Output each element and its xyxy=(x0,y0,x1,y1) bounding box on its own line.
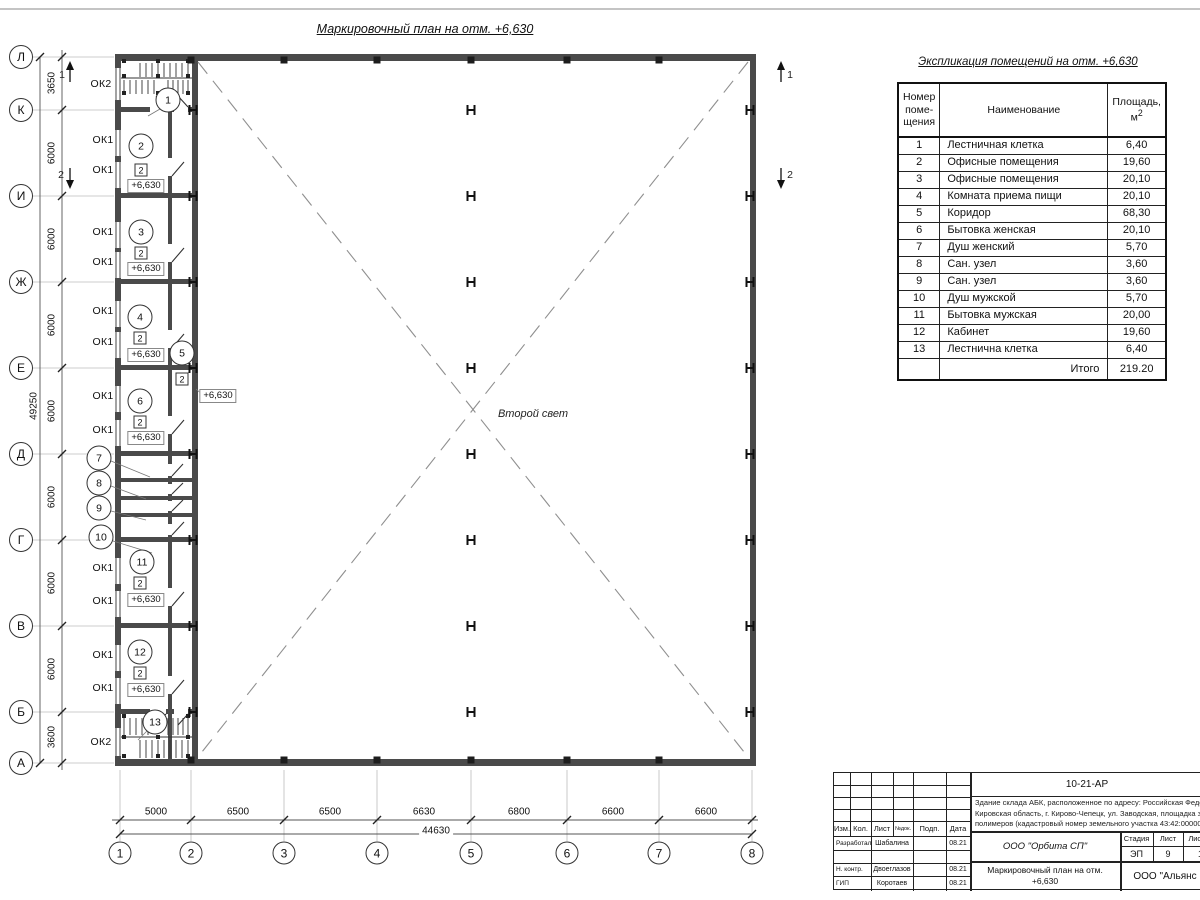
tb-col-data: Дата xyxy=(946,821,970,836)
title-block: Изм. Кол. Лист №док. Подп. Дата Разработ… xyxy=(833,772,1200,890)
room-area-cell: 5,70 xyxy=(1108,239,1166,256)
room-area-cell: 19,60 xyxy=(1108,324,1166,341)
room-number-marker: 6 xyxy=(128,389,153,414)
room-area-cell: 5,70 xyxy=(1108,290,1166,307)
level-mark: +6,630 xyxy=(127,593,164,607)
post-icon xyxy=(656,57,663,64)
window-label: ОК1 xyxy=(92,336,113,348)
room-number-cell: 3 xyxy=(898,171,940,188)
room-number-marker: 5 xyxy=(170,341,195,366)
floor-type-mark: 2 xyxy=(135,164,148,177)
floor-type-mark: 2 xyxy=(134,667,147,680)
steel-column-icon xyxy=(467,621,476,631)
tb-col-list: Лист xyxy=(871,821,893,836)
room-name-cell: Комната приема пищи xyxy=(940,188,1108,205)
room-area-cell: 19,60 xyxy=(1108,154,1166,171)
dimension-text: 6000 xyxy=(47,312,58,338)
post-icon xyxy=(188,757,195,764)
second-light-label: Второй свет xyxy=(498,408,568,420)
table-row: 3 Офисные помещения 20,10 xyxy=(898,171,1166,188)
steel-column-icon xyxy=(189,277,198,287)
project-address: Здание склада АБК, расположенное по адре… xyxy=(975,798,1200,830)
room-number-cell: 5 xyxy=(898,205,940,222)
dimension-text: 6000 xyxy=(47,570,58,596)
window-label: ОК2 xyxy=(90,736,111,748)
room-number-marker: 12 xyxy=(128,640,153,665)
post-icon xyxy=(656,757,663,764)
room-number-cell: 12 xyxy=(898,324,940,341)
axis-marker: Д xyxy=(9,442,33,466)
level-mark: +6,630 xyxy=(127,262,164,276)
post-icon xyxy=(281,757,288,764)
tb-date: 08.21 xyxy=(946,863,970,876)
steel-column-icon xyxy=(746,535,755,545)
steel-column-icon xyxy=(746,707,755,717)
level-mark: +6,630 xyxy=(127,683,164,697)
post-icon xyxy=(374,57,381,64)
axis-marker: К xyxy=(9,98,33,122)
axis-marker: 8 xyxy=(741,842,764,865)
post-icon xyxy=(281,57,288,64)
room-area-cell: 68,30 xyxy=(1108,205,1166,222)
total-height-dimension: 49250 xyxy=(29,389,40,423)
room-name-cell: Кабинет xyxy=(940,324,1108,341)
level-mark: +6,630 xyxy=(127,348,164,362)
room-number-cell: 9 xyxy=(898,273,940,290)
axis-marker: Л xyxy=(9,45,33,69)
room-area-cell: 20,00 xyxy=(1108,307,1166,324)
dimension-text: 6000 xyxy=(47,226,58,252)
table-header-row: Номер поме- щения Наименование Площадь,м… xyxy=(898,83,1166,137)
sheets-label: Листов xyxy=(1183,831,1200,846)
post-icon xyxy=(374,757,381,764)
steel-column-icon xyxy=(467,105,476,115)
window-label: ОК1 xyxy=(92,390,113,402)
document-number: 10-21-АР xyxy=(970,773,1200,796)
axis-marker: 5 xyxy=(460,842,483,865)
axis-marker: В xyxy=(9,614,33,638)
room-number-marker: 4 xyxy=(128,305,153,330)
table-row: 1 Лестничная клетка 6,40 xyxy=(898,137,1166,154)
level-mark: +6,630 xyxy=(127,179,164,193)
dimension-text: 6500 xyxy=(317,807,343,818)
steel-column-icon xyxy=(467,277,476,287)
table-row: 9 Сан. узел 3,60 xyxy=(898,273,1166,290)
steel-column-icon xyxy=(746,363,755,373)
axis-marker: И xyxy=(9,184,33,208)
dimension-text: 6600 xyxy=(600,807,626,818)
room-name-cell: Душ женский xyxy=(940,239,1108,256)
dimension-text: 6800 xyxy=(506,807,532,818)
axis-marker: Г xyxy=(9,528,33,552)
room-area-cell: 3,60 xyxy=(1108,273,1166,290)
col-header-name: Наименование xyxy=(940,83,1108,137)
axis-marker: Е xyxy=(9,356,33,380)
axis-marker: 6 xyxy=(556,842,579,865)
tb-col-podp: Подп. xyxy=(913,821,946,836)
window-label: ОК1 xyxy=(92,164,113,176)
tb-col-ndok: №док. xyxy=(893,821,913,836)
schedule-title: Экспликация помещений на отм. +6,630 xyxy=(918,56,1137,68)
axis-marker: 2 xyxy=(180,842,203,865)
floor-type-mark: 2 xyxy=(134,332,147,345)
tb-name: Коротаев xyxy=(871,876,913,891)
room-area-cell: 6,40 xyxy=(1108,341,1166,358)
steel-column-icon xyxy=(746,191,755,201)
floor-type-mark: 2 xyxy=(176,373,189,386)
window-label: ОК1 xyxy=(92,424,113,436)
level-mark: +6,630 xyxy=(127,431,164,445)
room-number-marker: 7 xyxy=(87,446,112,471)
post-icon xyxy=(564,57,571,64)
steel-column-icon xyxy=(746,621,755,631)
axis-marker: 3 xyxy=(273,842,296,865)
room-name-cell: Лестничная клетка xyxy=(940,137,1108,154)
room-number-cell: 1 xyxy=(898,137,940,154)
table-row: 11 Бытовка мужская 20,00 xyxy=(898,307,1166,324)
drawing-sheet: Маркировочный план на отм. +6,630 Экспли… xyxy=(0,0,1200,900)
section-mark-1: 1 xyxy=(787,69,793,81)
table-row: 12 Кабинет 19,60 xyxy=(898,324,1166,341)
room-number-marker: 13 xyxy=(143,710,168,735)
room-name-cell: Сан. узел xyxy=(940,273,1108,290)
room-name-cell: Сан. узел xyxy=(940,256,1108,273)
room-area-cell: 20,10 xyxy=(1108,222,1166,239)
dimension-text: 6000 xyxy=(47,656,58,682)
room-number-cell: 7 xyxy=(898,239,940,256)
room-number-cell: 2 xyxy=(898,154,940,171)
steel-column-icon xyxy=(189,535,198,545)
tb-col-kol: Кол. xyxy=(850,821,871,836)
window-label: ОК1 xyxy=(92,134,113,146)
stage-label: Стадия xyxy=(1120,831,1153,846)
room-number-marker: 10 xyxy=(89,525,114,550)
table-row: 2 Офисные помещения 19,60 xyxy=(898,154,1166,171)
room-area-cell: 20,10 xyxy=(1108,171,1166,188)
dimension-text: 3650 xyxy=(47,70,58,96)
room-number-marker: 8 xyxy=(87,471,112,496)
room-number-marker: 11 xyxy=(130,550,155,575)
steel-column-icon xyxy=(189,621,198,631)
steel-column-icon xyxy=(467,363,476,373)
room-name-cell: Офисные помещения xyxy=(940,154,1108,171)
tb-date: 08.21 xyxy=(946,836,970,850)
dimension-text: 6000 xyxy=(47,484,58,510)
plan-title: Маркировочный план на отм. +6,630 xyxy=(317,22,534,36)
table-total-row: Итого 219.20 xyxy=(898,358,1166,380)
axis-marker: Ж xyxy=(9,270,33,294)
table-row: 7 Душ женский 5,70 xyxy=(898,239,1166,256)
steel-column-icon xyxy=(189,707,198,717)
total-width-dimension: 44630 xyxy=(419,826,453,837)
section-mark-2: 2 xyxy=(787,169,793,181)
steel-column-icon xyxy=(746,105,755,115)
post-icon xyxy=(564,757,571,764)
steel-column-icon xyxy=(746,449,755,459)
drawing-title: Маркировочный план на отм. +6,630 xyxy=(970,861,1120,891)
steel-column-icon xyxy=(746,277,755,287)
window-label: ОК1 xyxy=(92,649,113,661)
post-icon xyxy=(468,757,475,764)
room-number-cell: 8 xyxy=(898,256,940,273)
room-name-cell: Бытовка мужская xyxy=(940,307,1108,324)
design-org: ООО "Орбита СП" xyxy=(970,831,1120,861)
window-label: ОК1 xyxy=(92,562,113,574)
tb-role: ГИП xyxy=(836,876,871,891)
window-label: ОК1 xyxy=(92,256,113,268)
steel-column-icon xyxy=(189,105,198,115)
room-name-cell: Коридор xyxy=(940,205,1108,222)
tb-role: Н. контр. xyxy=(836,863,871,876)
client-org: ООО "Альянс xyxy=(1120,861,1200,891)
table-row: 8 Сан. узел 3,60 xyxy=(898,256,1166,273)
steel-column-icon xyxy=(467,535,476,545)
col-header-number: Номер поме- щения xyxy=(898,83,940,137)
section-mark-1: 1 xyxy=(59,69,65,81)
total-label: Итого xyxy=(940,358,1108,380)
room-area-cell: 3,60 xyxy=(1108,256,1166,273)
room-number-marker: 3 xyxy=(129,220,154,245)
window-label: ОК1 xyxy=(92,682,113,694)
col-header-area: Площадь,м2 xyxy=(1108,83,1166,137)
steel-column-icon xyxy=(189,363,198,373)
axis-marker: 7 xyxy=(648,842,671,865)
floor-type-mark: 2 xyxy=(135,247,148,260)
post-icon xyxy=(468,57,475,64)
dimension-text: 6630 xyxy=(411,807,437,818)
empty-cell xyxy=(898,358,940,380)
tb-date: 08.21 xyxy=(946,876,970,891)
room-name-cell: Душ мужской xyxy=(940,290,1108,307)
window-label: ОК1 xyxy=(92,226,113,238)
tb-name: Шабалина xyxy=(871,836,913,850)
room-name-cell: Офисные помещения xyxy=(940,171,1108,188)
axis-marker: 4 xyxy=(366,842,389,865)
dimension-text: 6500 xyxy=(225,807,251,818)
tb-col-izm: Изм. xyxy=(834,821,850,836)
section-mark-2: 2 xyxy=(58,169,64,181)
floor-type-mark: 2 xyxy=(134,416,147,429)
room-area-cell: 20,10 xyxy=(1108,188,1166,205)
table-row: 13 Лестнична клетка 6,40 xyxy=(898,341,1166,358)
room-name-cell: Бытовка женская xyxy=(940,222,1108,239)
post-icon xyxy=(188,57,195,64)
room-name-cell: Лестнична клетка xyxy=(940,341,1108,358)
room-number-marker: 9 xyxy=(87,496,112,521)
dimension-text: 6600 xyxy=(693,807,719,818)
table-row: 10 Душ мужской 5,70 xyxy=(898,290,1166,307)
dimension-text: 3600 xyxy=(47,724,58,750)
dimension-text: 6000 xyxy=(47,140,58,166)
tb-role: Разработал xyxy=(836,836,871,850)
dimension-text: 5000 xyxy=(143,807,169,818)
total-value: 219.20 xyxy=(1108,358,1166,380)
sheet-value: 9 xyxy=(1153,846,1183,861)
table-row: 5 Коридор 68,30 xyxy=(898,205,1166,222)
table-row: 4 Комната приема пищи 20,10 xyxy=(898,188,1166,205)
steel-column-icon xyxy=(467,707,476,717)
room-number-cell: 6 xyxy=(898,222,940,239)
table-row: 6 Бытовка женская 20,10 xyxy=(898,222,1166,239)
room-number-marker: 1 xyxy=(156,88,181,113)
tb-name: Двоеглазов xyxy=(871,863,913,876)
window-label: ОК1 xyxy=(92,305,113,317)
dimension-text: 6000 xyxy=(47,398,58,424)
room-number-cell: 13 xyxy=(898,341,940,358)
stage-value: ЭП xyxy=(1120,846,1153,861)
room-number-cell: 11 xyxy=(898,307,940,324)
axis-marker: 1 xyxy=(109,842,132,865)
window-label: ОК2 xyxy=(90,78,111,90)
axis-marker: Б xyxy=(9,700,33,724)
room-number-cell: 10 xyxy=(898,290,940,307)
level-mark: +6,630 xyxy=(199,389,236,403)
floor-type-mark: 2 xyxy=(134,577,147,590)
steel-column-icon xyxy=(189,191,198,201)
steel-column-icon xyxy=(467,191,476,201)
room-number-marker: 2 xyxy=(129,134,154,159)
room-schedule-table: Номер поме- щения Наименование Площадь,м… xyxy=(897,82,1167,381)
sheets-value: 1 xyxy=(1183,846,1200,861)
axis-marker: А xyxy=(9,751,33,775)
room-number-cell: 4 xyxy=(898,188,940,205)
steel-column-icon xyxy=(189,449,198,459)
sheet-label: Лист xyxy=(1153,831,1183,846)
steel-column-icon xyxy=(467,449,476,459)
window-label: ОК1 xyxy=(92,595,113,607)
room-area-cell: 6,40 xyxy=(1108,137,1166,154)
